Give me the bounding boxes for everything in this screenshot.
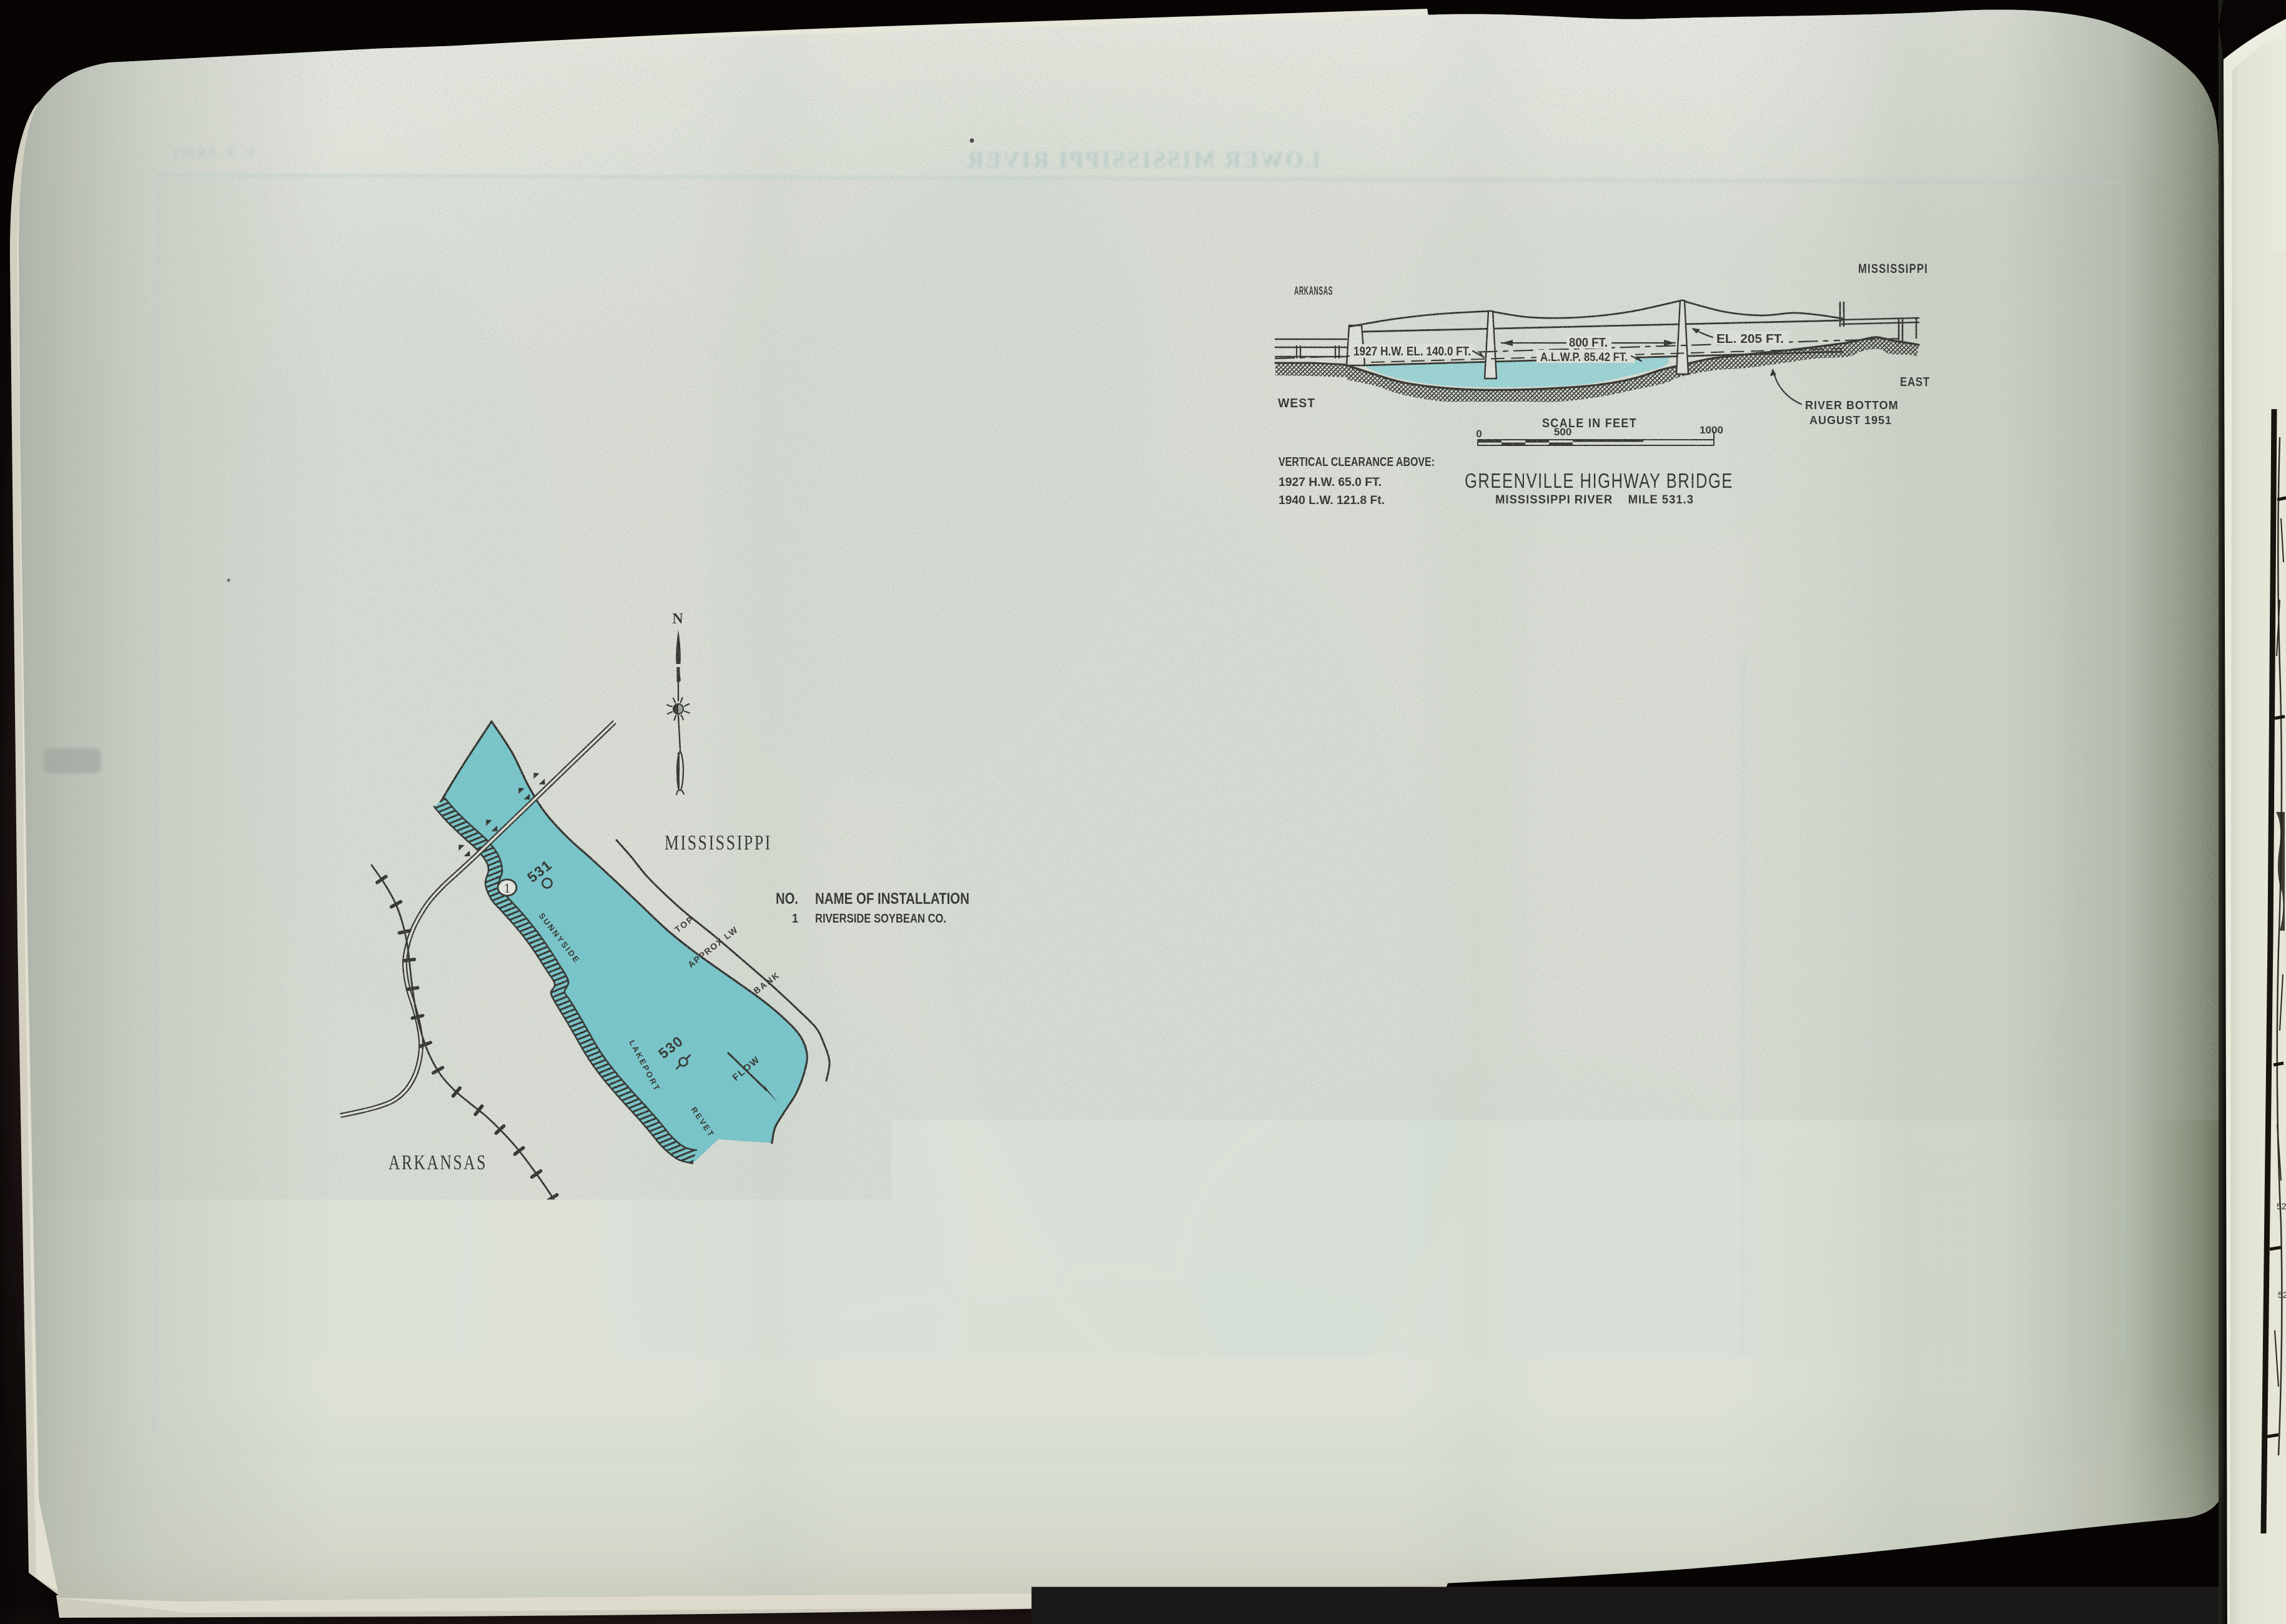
svg-text:529: 529 <box>2277 1201 2286 1211</box>
svg-text:528: 528 <box>2278 1290 2286 1300</box>
